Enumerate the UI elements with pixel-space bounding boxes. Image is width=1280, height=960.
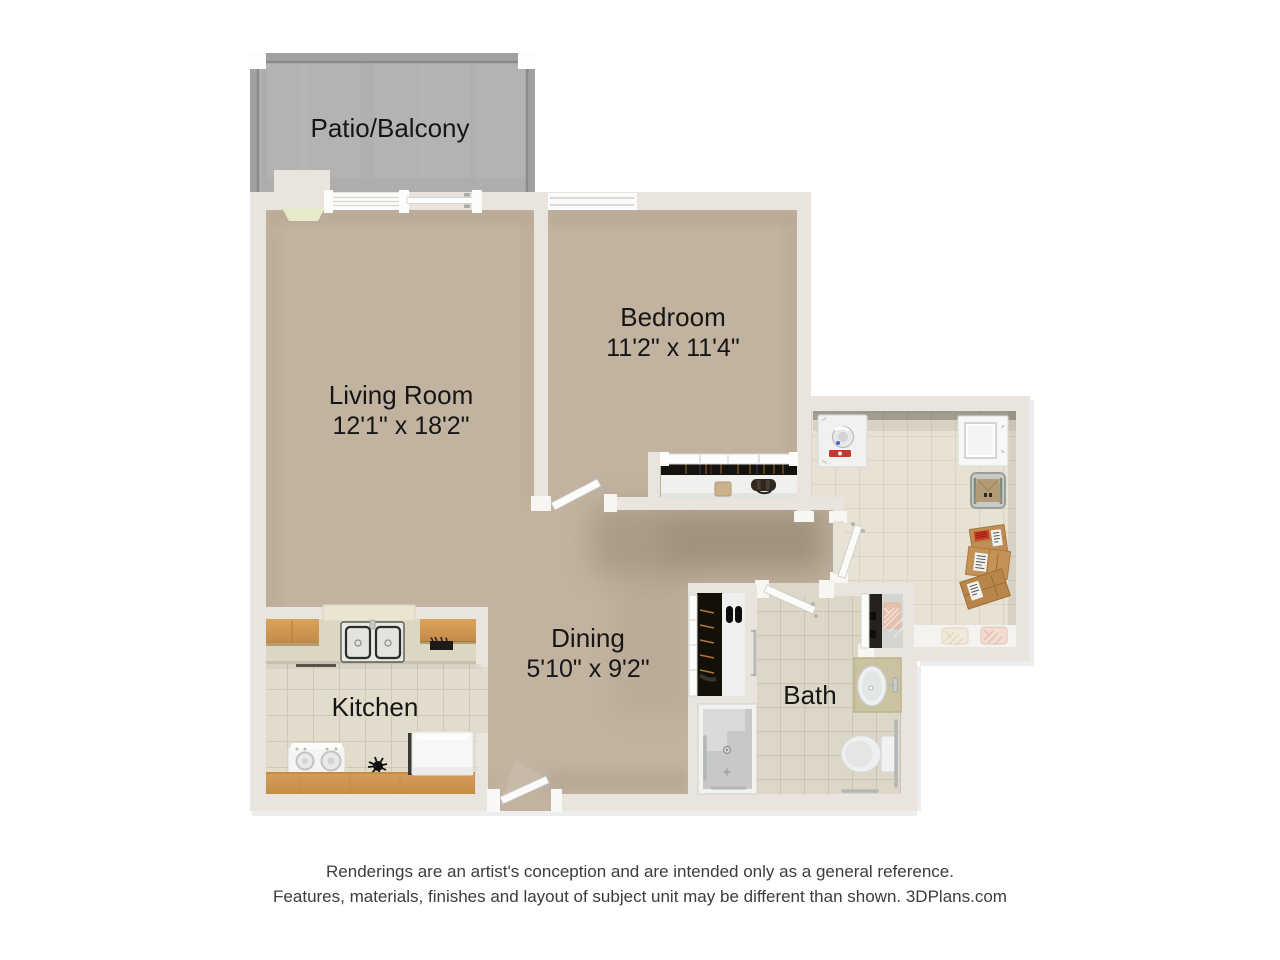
- svg-text:Bath: Bath: [783, 680, 837, 710]
- svg-text:5'10" x 9'2": 5'10" x 9'2": [526, 655, 649, 683]
- svg-text:11'2" x 11'4": 11'2" x 11'4": [606, 334, 739, 362]
- svg-text:Dining: Dining: [551, 623, 625, 653]
- svg-text:12'1" x 18'2": 12'1" x 18'2": [332, 412, 469, 440]
- svg-text:Kitchen: Kitchen: [332, 692, 419, 722]
- svg-text:Patio/Balcony: Patio/Balcony: [311, 113, 470, 143]
- svg-text:Living Room: Living Room: [329, 380, 474, 410]
- svg-text:Bedroom: Bedroom: [620, 302, 726, 332]
